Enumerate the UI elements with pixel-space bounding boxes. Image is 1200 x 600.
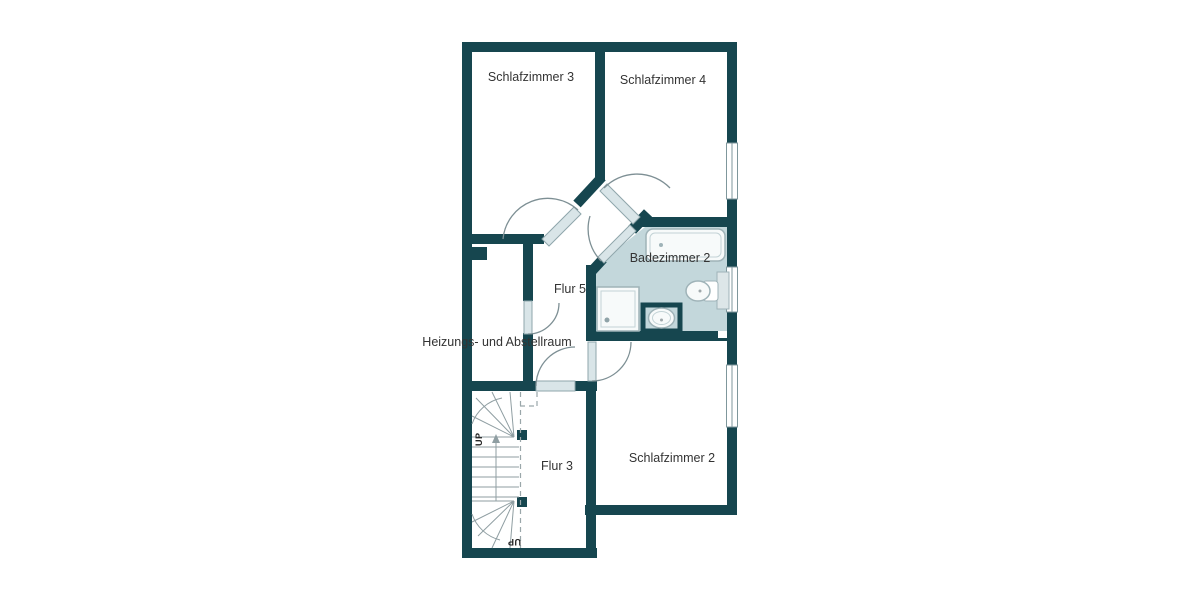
door-badezimmer2-arc bbox=[588, 216, 601, 261]
room-label-heizung: Heizungs- und Abstellraum bbox=[422, 335, 571, 349]
room-label-schlafzimmer3: Schlafzimmer 3 bbox=[488, 70, 574, 84]
shower-drain bbox=[605, 318, 610, 323]
room-label-schlafzimmer2: Schlafzimmer 2 bbox=[629, 451, 715, 465]
toilet-flush-dot bbox=[699, 290, 702, 293]
door-heizung-leaf bbox=[524, 301, 532, 334]
stairs: UP UP bbox=[472, 392, 537, 548]
room-label-badezimmer2: Badezimmer 2 bbox=[630, 251, 711, 265]
wall-heizung-top-stub bbox=[462, 247, 487, 260]
stair-treads bbox=[472, 392, 519, 548]
room-label-flur5: Flur 5 bbox=[554, 282, 586, 296]
stair-direction-arrow bbox=[492, 434, 500, 443]
floor-plan-svg: UP UP Schlafzimmer 3 Schlafzimmer 4 Bade… bbox=[0, 0, 1200, 600]
door-schlafzimmer3-leaf bbox=[542, 207, 581, 246]
shower bbox=[597, 287, 639, 331]
door-schlafzimmer2-leaf bbox=[588, 342, 596, 381]
stair-opening-dashed-line bbox=[520, 392, 537, 548]
stair-post-top bbox=[517, 430, 527, 440]
door-flur3-leaf bbox=[536, 381, 575, 391]
door-heizung-arc bbox=[528, 303, 559, 334]
room-label-schlafzimmer4: Schlafzimmer 4 bbox=[620, 73, 706, 87]
door-schlafzimmer4-arc bbox=[604, 174, 670, 188]
toilet-tank bbox=[717, 272, 729, 309]
stair-post-bottom bbox=[517, 497, 527, 507]
washbasin-drain bbox=[660, 319, 663, 322]
wall-diagonal-s3 bbox=[577, 177, 602, 204]
door-schlafzimmer4-leaf bbox=[600, 184, 640, 224]
door-flur3-arc bbox=[536, 347, 575, 386]
toilet-bowl bbox=[686, 281, 710, 301]
bathtub-drain bbox=[659, 243, 663, 247]
wall-vent-marker bbox=[718, 331, 727, 338]
room-label-flur3: Flur 3 bbox=[541, 459, 573, 473]
door-schlafzimmer2-arc bbox=[592, 342, 631, 381]
up-label-bottom: UP bbox=[507, 537, 521, 547]
up-label-top: UP bbox=[474, 432, 484, 446]
floor-plan-page: UP UP Schlafzimmer 3 Schlafzimmer 4 Bade… bbox=[0, 0, 1200, 600]
